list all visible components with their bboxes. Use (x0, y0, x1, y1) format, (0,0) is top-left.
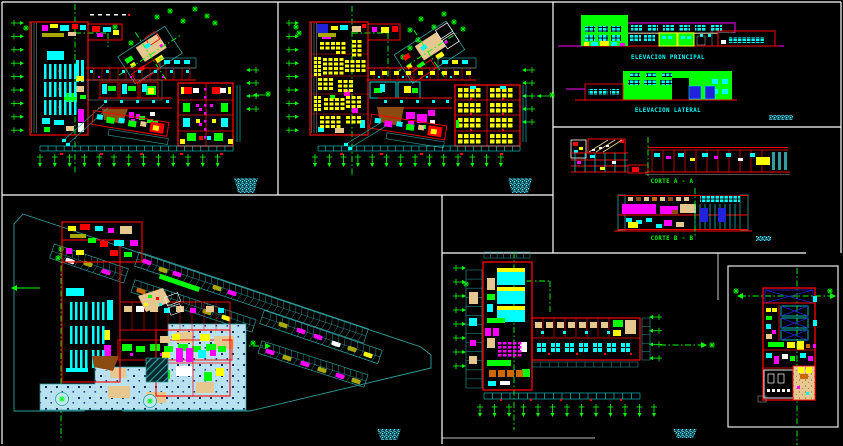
dining-tables (458, 118, 481, 128)
balcony-rails (32, 23, 37, 133)
grid-dimension-markers-bottom (477, 404, 657, 417)
dining-tables (490, 88, 513, 98)
title-stamp-icon (234, 178, 258, 193)
arrowhead-icon (537, 94, 541, 98)
section-a-a: CORTE A - A (571, 137, 790, 185)
guestroom-furniture (180, 87, 233, 144)
elevation-principal-label: ELEVACION PRINCIPAL (631, 55, 705, 61)
dining-tables (490, 103, 513, 113)
grid-dimension-markers-right (522, 67, 535, 125)
glazed-entry (659, 33, 677, 46)
grid-dimension-markers-right (246, 67, 259, 112)
furniture-grid (323, 58, 344, 75)
grid-dimension-markers-left (11, 20, 24, 133)
right-tick-band (642, 318, 650, 360)
wing-dots (548, 353, 632, 355)
entry-block-furniture (372, 26, 398, 33)
step (758, 396, 766, 402)
title-stamp-icon (508, 178, 532, 193)
table-bars (70, 302, 88, 320)
dining-tables (458, 88, 481, 98)
furniture-grid (320, 42, 335, 50)
section-b-label: CORTE B - B (651, 236, 694, 242)
lower-tick-band (532, 362, 638, 367)
balcony-rails (312, 23, 317, 133)
canopy-posts (62, 139, 70, 146)
wing-upper-rooms (535, 320, 636, 336)
upper-strip-fixtures (164, 60, 190, 64)
grid-dimension-markers-left (286, 20, 299, 133)
dimension-ticks (340, 153, 503, 155)
section-a-label: CORTE A - A (651, 179, 694, 185)
title-stamp-icon (377, 429, 401, 440)
arrowhead-icon (701, 342, 707, 348)
dining-tables (490, 134, 513, 144)
mid-rooms (370, 82, 452, 108)
furniture-grid (345, 60, 366, 72)
table-bars (70, 350, 88, 368)
table-cluster (607, 343, 616, 352)
recessed-opening (672, 78, 689, 100)
mid-rooms (88, 80, 172, 108)
dining-tables (458, 103, 481, 113)
panel-site-plan (11, 214, 431, 441)
angled-lower-band (368, 114, 447, 148)
grid-dimension-markers-right (649, 314, 662, 361)
furniture-grid (336, 42, 346, 54)
seating-grid (498, 342, 522, 357)
main-block-interior (485, 268, 530, 386)
panel-floor-plan-small (728, 266, 838, 445)
table-cluster (551, 343, 560, 352)
table-cluster (579, 343, 588, 352)
section-b-b: CORTE B - B (614, 188, 771, 242)
dining-tables (490, 118, 513, 128)
dimension-band-bottom (484, 393, 640, 399)
furniture-grid (314, 57, 321, 76)
grid-dimension-markers-bottom (37, 154, 221, 167)
door (689, 86, 701, 99)
table-bars (92, 326, 105, 344)
mid-room-furniture (102, 84, 156, 95)
guestroom-block (178, 83, 240, 146)
elevation-lateral-label: ELEVACION LATERAL (635, 108, 701, 114)
section-furniture (577, 155, 616, 170)
panel-sections: CORTE A - A CORTE B - B (571, 137, 790, 242)
tree-symbols (733, 288, 833, 294)
furniture-grid (346, 116, 361, 124)
table-cluster (593, 343, 602, 352)
arrowhead-icon (737, 293, 743, 299)
door (705, 86, 715, 99)
hatched-ramp (146, 358, 168, 382)
roof-detail (628, 197, 689, 201)
table-cluster (565, 343, 574, 352)
stair-bays (781, 306, 808, 340)
cad-canvas: ELEVACION PRINCIPAL ELEVACION LATERAL (0, 0, 843, 446)
left-band-rooms (469, 292, 478, 364)
table-bars (70, 326, 88, 344)
table-bars (92, 302, 105, 320)
table-bars (64, 100, 77, 115)
furniture-grid (338, 80, 353, 92)
arrowhead-icon (830, 293, 836, 299)
corridor-fixtures (370, 71, 471, 78)
table-cluster (537, 343, 546, 352)
dimension-band-bottom (40, 146, 233, 151)
corridor2-fixtures (384, 100, 449, 103)
mid-band-rooms (124, 306, 224, 313)
furniture-grid (324, 98, 345, 110)
furniture-grid (346, 96, 361, 108)
arrowhead-icon (253, 93, 257, 97)
table-bars (64, 82, 77, 97)
grid-dimension-markers-left (453, 265, 466, 369)
grid-dimension-markers-bottom (312, 154, 504, 167)
dining-tables (458, 134, 481, 144)
table-cluster (621, 343, 630, 352)
panel-floor-plan-first (11, 4, 271, 193)
upper-floor-rooms (622, 204, 696, 214)
table-bars (64, 64, 77, 79)
furniture-grid (320, 116, 341, 128)
canopy-posts (344, 143, 352, 150)
left-tick-band (466, 270, 482, 388)
panel-floor-plan-second (286, 6, 555, 193)
scale-stamp-icon (769, 115, 793, 120)
corridor2-fixtures (104, 100, 169, 103)
furniture-grid (314, 96, 321, 111)
scale-stamp-icon (756, 236, 771, 241)
furniture-grid (318, 78, 333, 90)
cad-drawing-sheet: ELEVACION PRINCIPAL ELEVACION LATERAL (0, 0, 843, 446)
elevation-principal: ELEVACION PRINCIPAL (558, 15, 784, 61)
service-squares (489, 370, 523, 377)
panel-elevations: ELEVACION PRINCIPAL ELEVACION LATERAL (558, 15, 793, 120)
title-stamp-icon (673, 429, 697, 438)
restroom-fixtures (767, 389, 790, 392)
lower-floor-rooms (626, 218, 684, 228)
upper-strip-fixtures (442, 60, 468, 64)
window (585, 26, 595, 32)
elevation-lateral: ELEVACION LATERAL (566, 71, 793, 120)
panel-floor-plan-third (453, 252, 715, 438)
